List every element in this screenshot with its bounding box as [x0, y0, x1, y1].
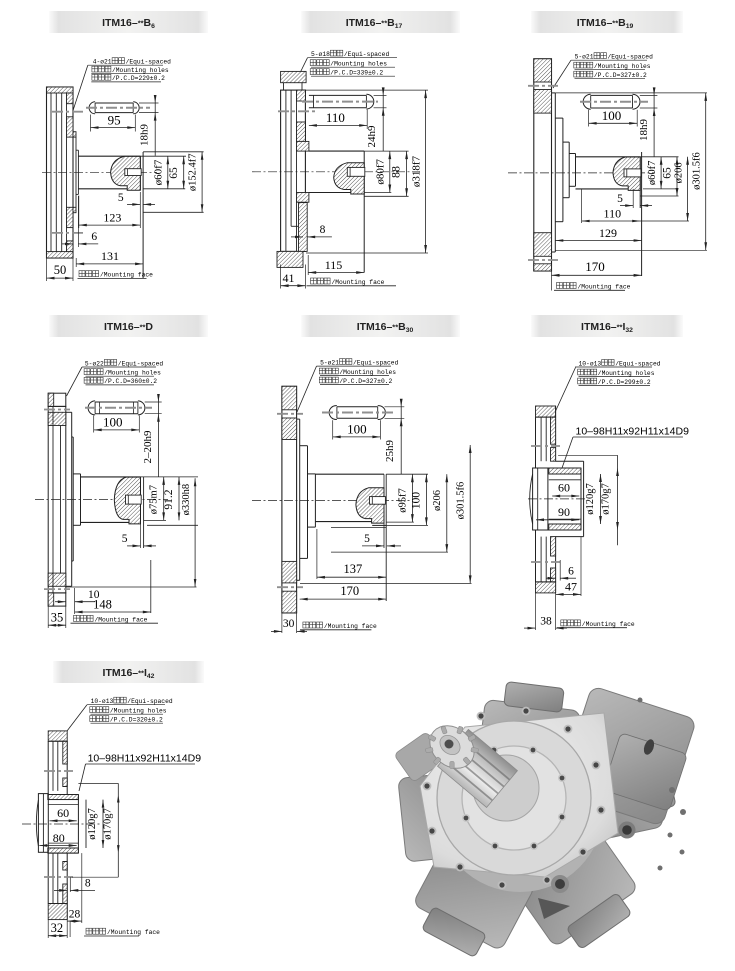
svg-text:ITM16–**I32: ITM16–**I32	[581, 321, 633, 334]
svg-text:/Equi-spaced: /Equi-spaced	[126, 59, 172, 66]
svg-text:100: 100	[602, 108, 622, 123]
svg-text:10–98H11x92H11x14D9: 10–98H11x92H11x14D9	[576, 426, 690, 438]
svg-text:/Mounting face: /Mounting face	[107, 929, 160, 936]
svg-text:/Mounting holes: /Mounting holes	[330, 61, 387, 68]
svg-text:6: 6	[91, 231, 97, 243]
svg-text:137: 137	[344, 562, 363, 576]
svg-text:/Mounting holes: /Mounting holes	[598, 370, 655, 377]
svg-text:2–20h9: 2–20h9	[142, 430, 154, 464]
svg-text:30: 30	[283, 618, 295, 630]
svg-text:47: 47	[565, 580, 577, 594]
svg-text:5-ø21: 5-ø21	[575, 54, 594, 61]
svg-text:/Mounting face: /Mounting face	[332, 279, 385, 286]
svg-text:28: 28	[69, 908, 81, 920]
svg-text:24h9: 24h9	[366, 125, 378, 148]
svg-text:129: 129	[599, 226, 617, 240]
svg-text:ø301.5f6: ø301.5f6	[455, 482, 466, 520]
svg-text:ø75m7: ø75m7	[149, 485, 160, 514]
svg-text:/Mounting face: /Mounting face	[578, 284, 631, 291]
svg-text:ø60f7: ø60f7	[647, 161, 658, 186]
svg-text:115: 115	[325, 258, 343, 272]
svg-text:5: 5	[122, 533, 128, 545]
svg-text:ø330h8: ø330h8	[181, 484, 192, 515]
svg-text:91.2: 91.2	[163, 489, 175, 509]
svg-text:35: 35	[51, 611, 64, 625]
svg-text:ITM16–**B6: ITM16–**B6	[102, 17, 155, 30]
svg-text:/Mounting face: /Mounting face	[100, 272, 153, 279]
svg-text:/Mounting holes: /Mounting holes	[594, 63, 651, 70]
svg-text:/Equi-spaced: /Equi-spaced	[353, 359, 399, 366]
svg-text:ITM16–**I42: ITM16–**I42	[103, 667, 155, 680]
svg-text:/Mounting face: /Mounting face	[582, 621, 635, 628]
svg-text:ITM16–**B17: ITM16–**B17	[346, 17, 403, 30]
svg-text:/Mounting holes: /Mounting holes	[339, 369, 396, 376]
svg-text:170: 170	[585, 259, 605, 274]
svg-text:/P.C.D=327±0.2: /P.C.D=327±0.2	[594, 72, 647, 79]
svg-text:38: 38	[540, 615, 552, 627]
svg-text:/Mounting face: /Mounting face	[95, 616, 148, 623]
svg-text:ø206: ø206	[674, 162, 685, 183]
svg-text:110: 110	[604, 207, 622, 221]
svg-text:ø120g7: ø120g7	[585, 483, 596, 515]
svg-text:ITM16–**B30: ITM16–**B30	[357, 321, 414, 334]
svg-text:5: 5	[364, 533, 370, 545]
svg-text:/P.C.D=320±0.2: /P.C.D=320±0.2	[110, 717, 163, 724]
svg-text:ø301.5f6: ø301.5f6	[692, 152, 703, 190]
svg-text:/Equi-spaced: /Equi-spaced	[118, 360, 164, 367]
svg-text:4-ø21: 4-ø21	[93, 59, 112, 66]
svg-text:18h9: 18h9	[638, 119, 650, 142]
svg-text:10-ø13: 10-ø13	[579, 360, 602, 367]
svg-text:8: 8	[85, 878, 91, 890]
svg-text:/Equi-spaced: /Equi-spaced	[127, 698, 173, 705]
svg-text:100: 100	[103, 415, 123, 430]
svg-text:100: 100	[411, 492, 423, 510]
svg-text:ITM16–**B19: ITM16–**B19	[577, 17, 634, 30]
svg-text:41: 41	[283, 271, 295, 285]
svg-text:/Equi-spaced: /Equi-spaced	[608, 54, 654, 61]
svg-text:ø170g7: ø170g7	[102, 808, 113, 840]
svg-text:ITM16–**D: ITM16–**D	[104, 321, 153, 333]
svg-text:/Equi-spaced: /Equi-spaced	[344, 51, 390, 58]
svg-text:/P.C.D=299±0.2: /P.C.D=299±0.2	[598, 379, 651, 386]
svg-text:10-ø13: 10-ø13	[91, 698, 114, 705]
svg-text:100: 100	[347, 421, 367, 436]
svg-text:60: 60	[558, 481, 570, 495]
svg-text:131: 131	[101, 249, 119, 263]
svg-text:/Mounting holes: /Mounting holes	[112, 67, 169, 74]
svg-text:95: 95	[108, 112, 121, 127]
svg-text:110: 110	[326, 110, 345, 125]
svg-text:/P.C.D=339±0.2: /P.C.D=339±0.2	[330, 70, 383, 77]
svg-text:60: 60	[57, 806, 69, 820]
svg-text:ø206: ø206	[432, 490, 443, 511]
svg-text:/P.C.D=360±0.2: /P.C.D=360±0.2	[104, 378, 157, 385]
svg-text:ø80f7: ø80f7	[375, 158, 387, 184]
svg-text:50: 50	[54, 263, 67, 277]
svg-text:18h9: 18h9	[139, 124, 151, 147]
svg-text:ø120g7: ø120g7	[87, 808, 98, 840]
svg-text:6: 6	[568, 565, 574, 577]
svg-text:/P.C.D=327±0.2: /P.C.D=327±0.2	[339, 378, 392, 385]
svg-text:10–98H11x92H11x14D9: 10–98H11x92H11x14D9	[88, 753, 202, 765]
svg-text:65: 65	[662, 167, 674, 179]
svg-text:32: 32	[51, 921, 64, 935]
svg-text:ø152.4f7: ø152.4f7	[188, 153, 199, 191]
svg-text:/Mounting face: /Mounting face	[324, 623, 377, 630]
svg-text:5-ø22: 5-ø22	[85, 360, 104, 367]
svg-text:123: 123	[103, 211, 121, 225]
svg-text:80: 80	[53, 831, 65, 845]
svg-text:65: 65	[168, 167, 180, 179]
svg-text:148: 148	[93, 597, 112, 611]
svg-text:/P.C.D=229±0.2: /P.C.D=229±0.2	[112, 75, 165, 82]
svg-text:5-ø18: 5-ø18	[311, 51, 330, 58]
svg-text:5: 5	[617, 193, 623, 205]
svg-text:90: 90	[558, 505, 570, 519]
svg-text:/Mounting holes: /Mounting holes	[104, 370, 161, 377]
svg-text:ø60f7: ø60f7	[152, 159, 164, 185]
svg-text:5: 5	[118, 192, 124, 204]
svg-text:/Equi-spaced: /Equi-spaced	[615, 360, 661, 367]
svg-text:ø95f7: ø95f7	[397, 488, 408, 513]
svg-text:/Mounting holes: /Mounting holes	[110, 708, 167, 715]
svg-text:170: 170	[340, 584, 359, 598]
svg-text:25h9: 25h9	[384, 440, 396, 463]
svg-text:ø170g7: ø170g7	[601, 483, 612, 515]
svg-text:8: 8	[320, 224, 326, 236]
svg-text:ø318f7: ø318f7	[410, 155, 422, 187]
svg-text:5-ø21: 5-ø21	[320, 359, 339, 366]
svg-text:88: 88	[389, 166, 403, 178]
